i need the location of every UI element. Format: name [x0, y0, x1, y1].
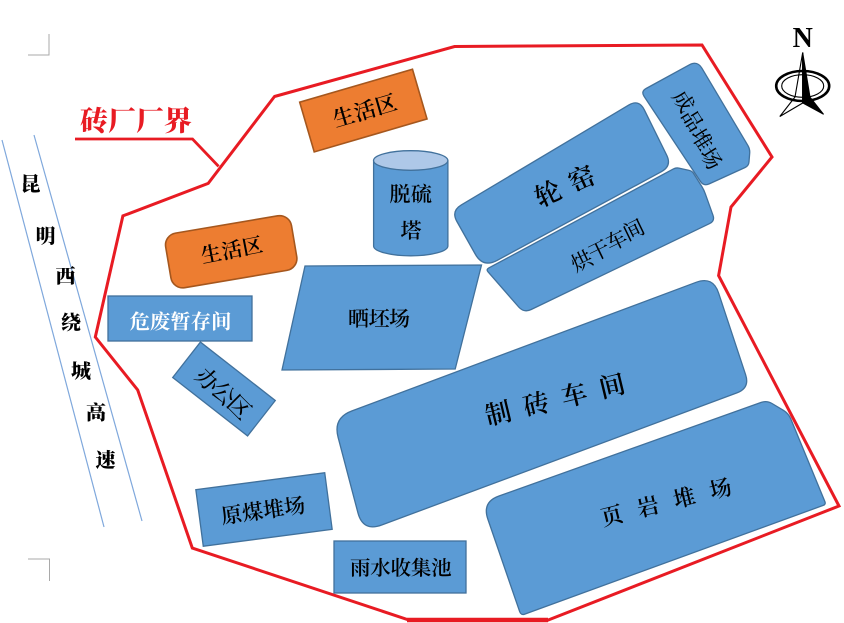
svg-text:N: N	[793, 23, 813, 54]
